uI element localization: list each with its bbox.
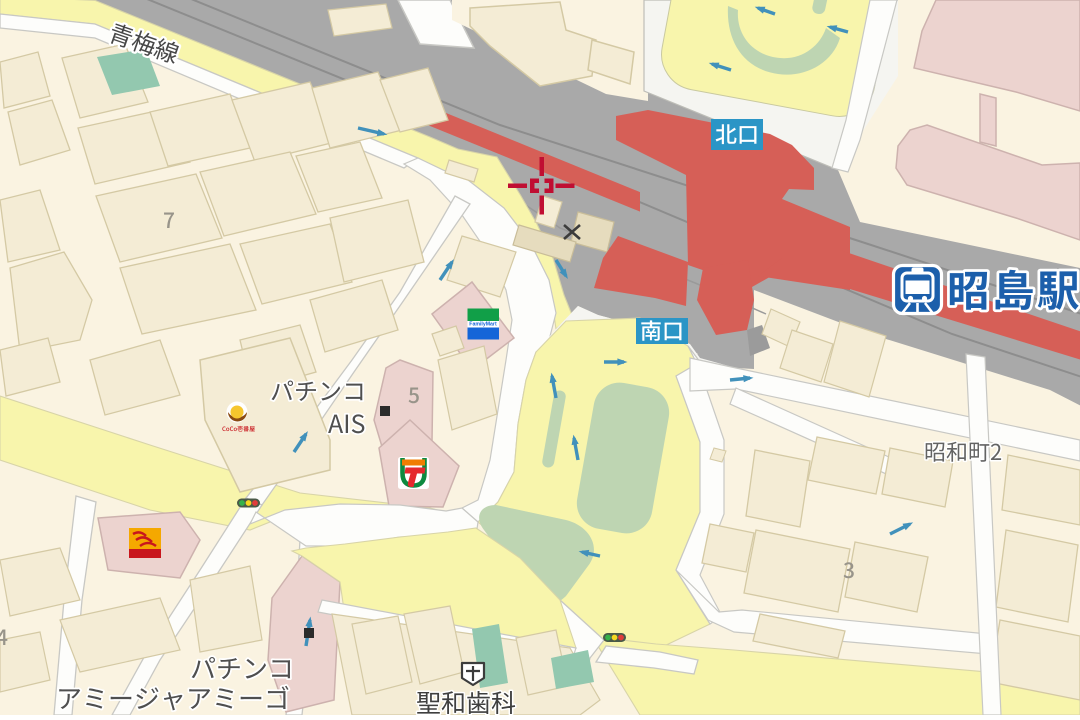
svg-text:FamilyMart: FamilyMart xyxy=(469,321,497,327)
